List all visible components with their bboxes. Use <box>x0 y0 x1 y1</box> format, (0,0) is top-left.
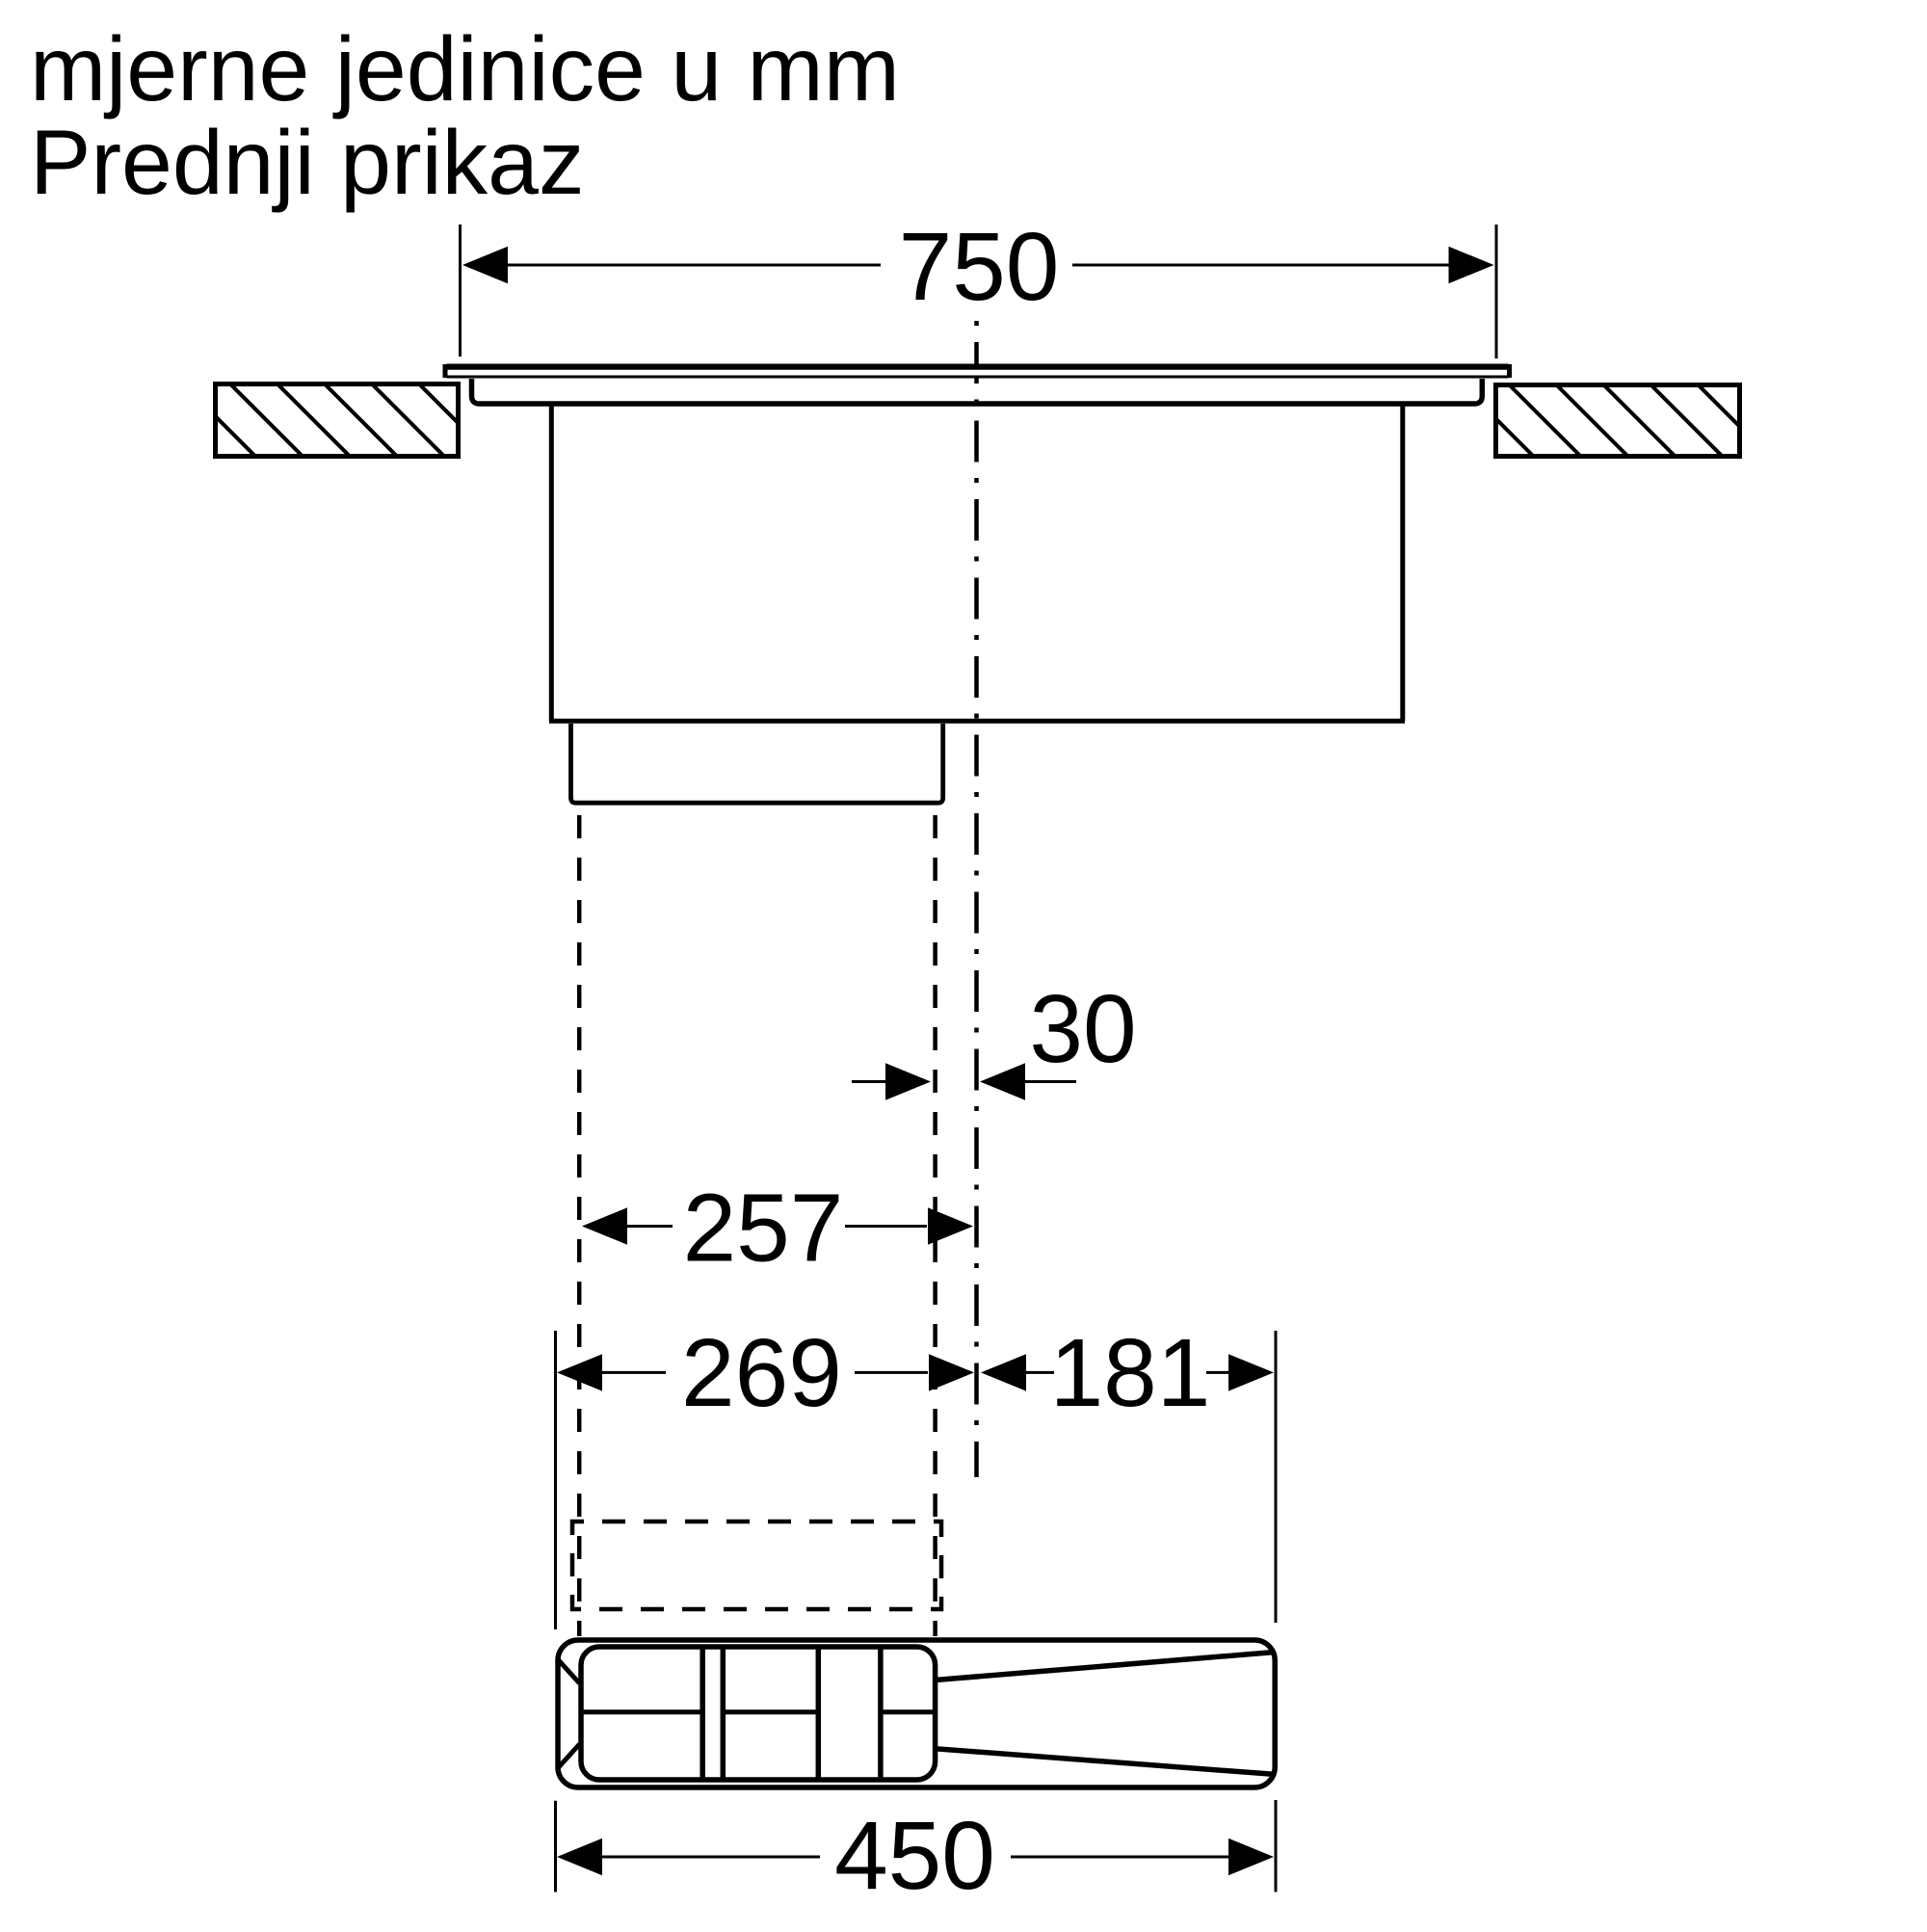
svg-text:257: 257 <box>683 1175 844 1283</box>
svg-text:269: 269 <box>681 1319 842 1427</box>
svg-text:750: 750 <box>899 213 1060 321</box>
svg-text:Prednji prikaz: Prednji prikaz <box>30 112 585 214</box>
svg-text:450: 450 <box>834 1802 995 1910</box>
svg-text:181: 181 <box>1050 1319 1211 1427</box>
svg-text:30: 30 <box>1029 975 1136 1083</box>
svg-text:mjerne jedinice u mm: mjerne jedinice u mm <box>30 18 900 120</box>
